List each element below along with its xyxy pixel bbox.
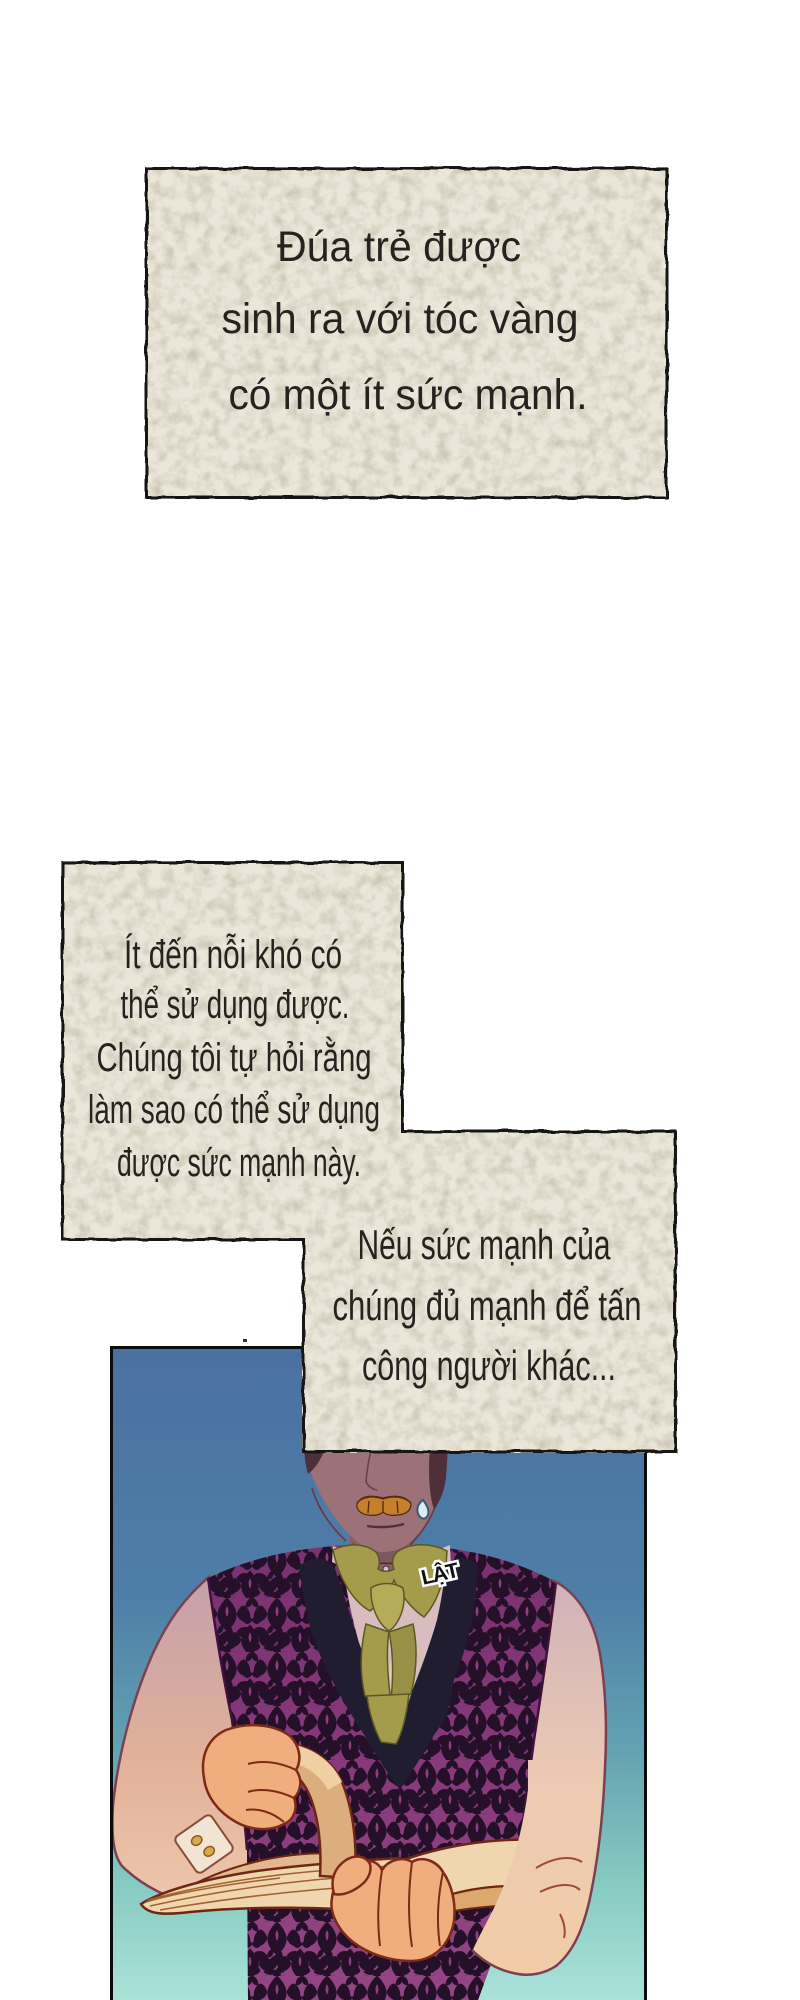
svg-text:làm sao có thể sử dụng: làm sao có thể sử dụng bbox=[88, 1088, 380, 1132]
svg-text:chúng đủ mạnh để tấn: chúng đủ mạnh để tấn bbox=[333, 1282, 642, 1329]
svg-text:có một ít sức mạnh.: có một ít sức mạnh. bbox=[229, 371, 588, 419]
svg-text:được sức mạnh này.: được sức mạnh này. bbox=[117, 1141, 361, 1185]
svg-text:Nếu sức mạnh của: Nếu sức mạnh của bbox=[358, 1221, 611, 1268]
svg-text:thể sử dụng được.: thể sử dụng được. bbox=[121, 983, 350, 1027]
svg-text:Đúa trẻ được: Đúa trẻ được bbox=[277, 223, 521, 271]
svg-text:sinh ra với tóc vàng: sinh ra với tóc vàng bbox=[222, 295, 579, 343]
svg-text:công người khác...: công người khác... bbox=[362, 1342, 616, 1389]
svg-text:Ít đến nỗi khó có: Ít đến nỗi khó có bbox=[124, 932, 342, 977]
svg-text:Chúng tôi tự hỏi rằng: Chúng tôi tự hỏi rằng bbox=[97, 1035, 372, 1080]
